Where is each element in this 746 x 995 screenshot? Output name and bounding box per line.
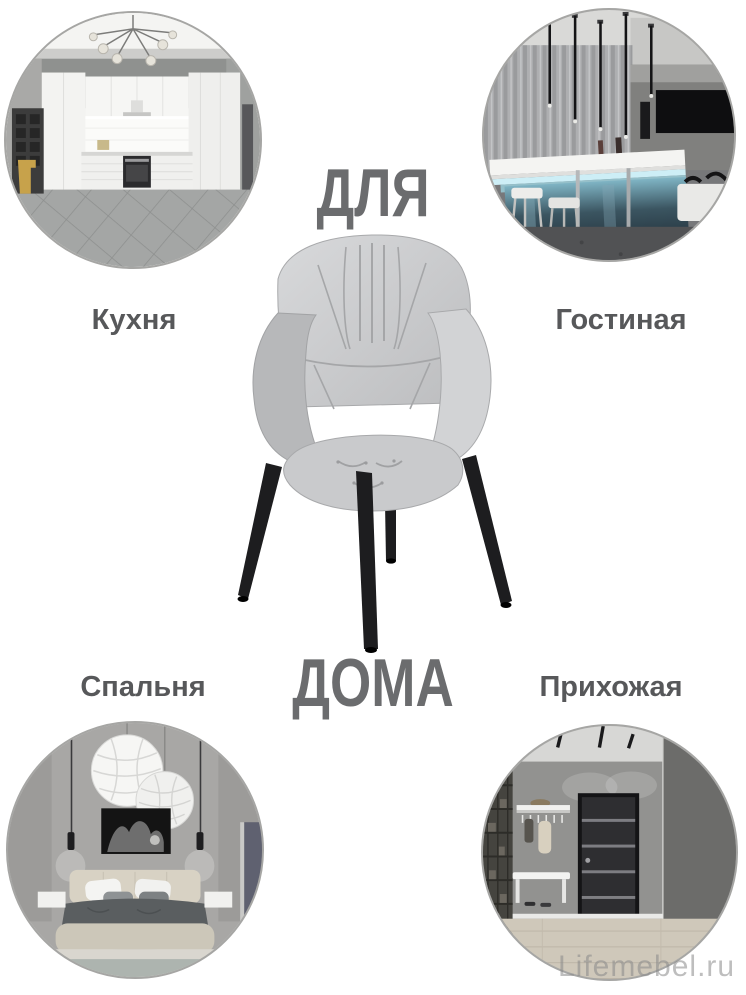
ladder-shelving [483,762,513,940]
site-watermark: Lifemebel.ru [558,950,746,984]
entrance-door [578,793,639,918]
armchair-product-image [222,231,522,662]
bedroom-scene [8,723,262,977]
headline-line1: ДЛЯ [82,158,664,228]
wall-art-tree [101,808,170,854]
bedroom-photo-circle [6,721,264,979]
nightstand-right [204,892,232,908]
rug [28,959,242,977]
kitchen-scene [6,13,260,267]
banquette [677,184,734,221]
nightstand-left [38,892,66,908]
armchair-illustration [222,231,522,662]
hallway-scene [483,726,736,979]
hallway-photo-circle [481,724,738,981]
living-room-label: Гостиная [496,303,746,337]
headline-line2: ДОМА [82,648,664,718]
tv-screen [656,90,734,133]
wardrobe-wall [663,732,736,943]
chair-seat-cushion [284,435,463,511]
